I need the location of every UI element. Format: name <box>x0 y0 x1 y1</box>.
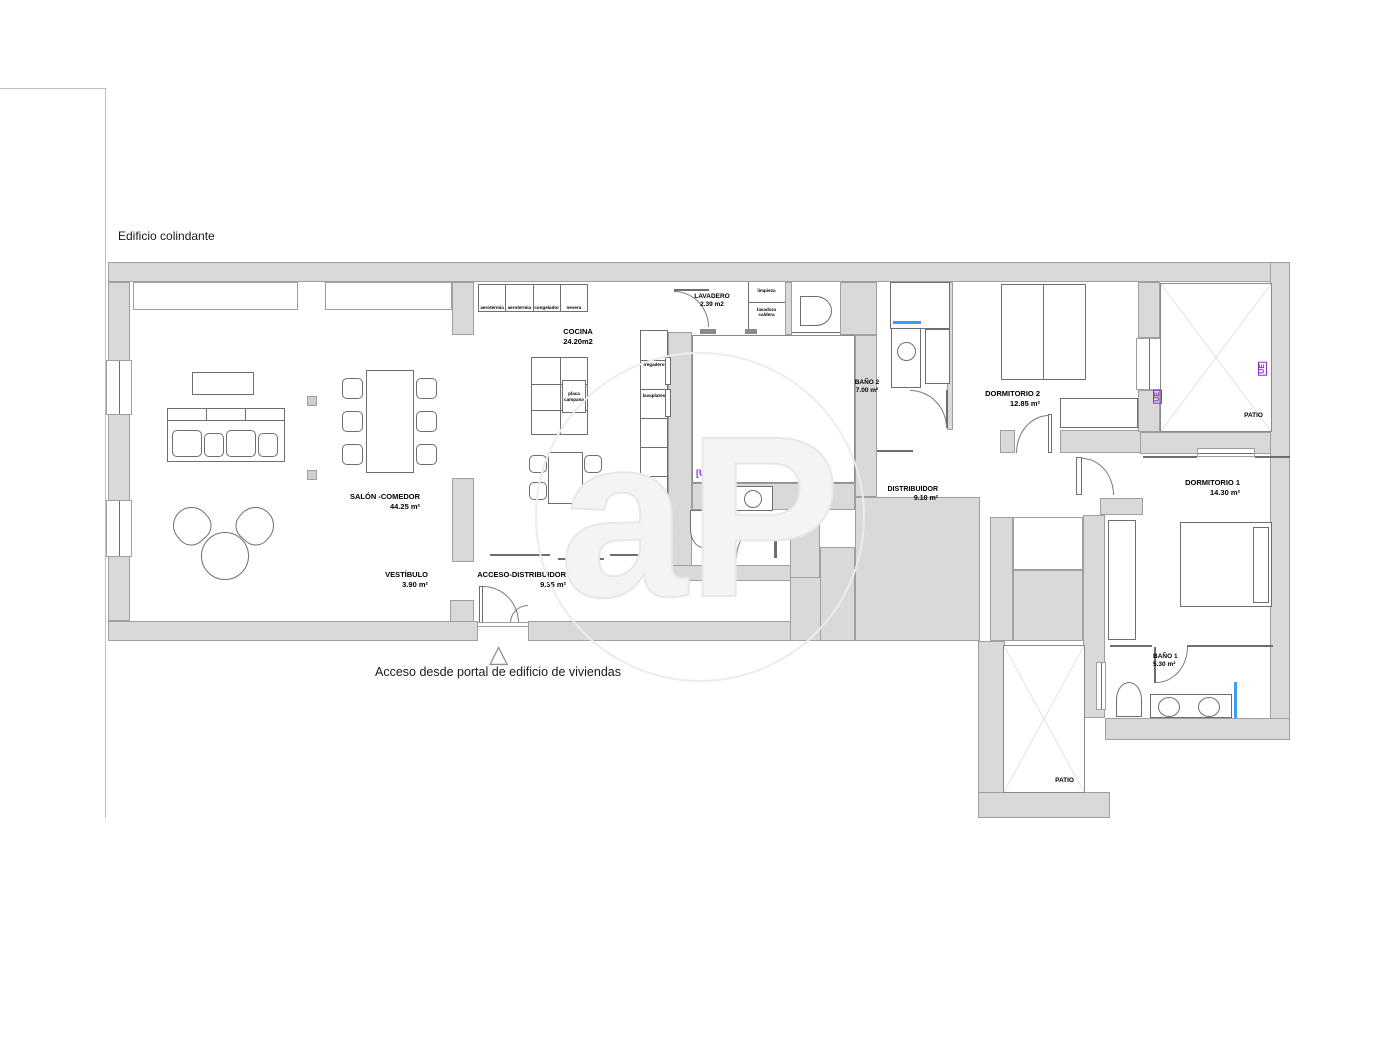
ue-tag-patio-left: UE <box>1153 390 1162 404</box>
wall-right <box>1270 262 1290 740</box>
sofa-cushion <box>258 433 278 457</box>
wall-salon-cocina-bottom <box>452 478 474 562</box>
boiler-drum <box>800 296 832 326</box>
wall-patio-center-right <box>855 335 877 497</box>
wall-corridor-left <box>990 517 1013 641</box>
bano1-top-wall-line-b <box>1187 645 1273 647</box>
patio-center: PATIO <box>692 335 855 483</box>
window-dorm1-top <box>1197 448 1255 457</box>
unit-fridge: nevera <box>561 285 587 311</box>
wall-aseo-bottom <box>668 565 800 581</box>
wall-left <box>108 282 130 621</box>
room-label-bano2: BAÑO 27.00 m² <box>842 379 892 396</box>
adjacent-building-label: Edificio colindante <box>118 229 215 243</box>
tv-sideboard <box>192 372 254 395</box>
unit-divider <box>641 389 667 390</box>
laundry-niche-bottom-line <box>792 332 840 333</box>
window-dorm2-patio <box>1136 338 1162 390</box>
sofa-divider <box>245 409 246 420</box>
kitchen-chair <box>529 482 547 500</box>
room-label-cocina: COCINA24.20m2 <box>548 327 608 347</box>
oven-stack-label: fornhornomicro <box>640 522 668 538</box>
sofa-cushion <box>204 433 224 457</box>
dorm1-top-wall-line-b <box>1255 456 1290 458</box>
aseo-door-swing <box>736 519 775 558</box>
sofa-back-line <box>168 420 284 421</box>
room-label-salon: SALÓN -COMEDOR44.25 m² <box>300 492 420 512</box>
patio-label: PATIO <box>1244 412 1263 419</box>
washbasin-aseo <box>744 490 762 508</box>
window-glass-line <box>1149 339 1150 389</box>
entry-sill <box>478 622 528 627</box>
ue-tag-center: [UE] <box>696 468 715 478</box>
wall-dorm1-entry-stub <box>1100 498 1143 515</box>
window-glass-line <box>119 501 120 556</box>
patio-top-right: PATIO <box>1160 283 1272 432</box>
wall-top <box>108 262 1290 282</box>
washbasin-bano2 <box>897 342 916 361</box>
wall-bano1-bottom <box>1105 718 1290 740</box>
boundary-line-vertical <box>105 88 106 818</box>
wall-small-block <box>820 547 855 641</box>
wall-dorm2-bottom-a <box>1000 430 1015 453</box>
wall-dorm2-bottom-b <box>1060 430 1150 453</box>
kitchen-chair <box>584 482 602 500</box>
window-glass-line <box>1101 663 1102 709</box>
room-label-distribuidor: DISTRIBUIDOR9.10 m² <box>868 485 938 503</box>
dorm1-top-wall-line-a <box>1143 456 1197 458</box>
unit-divider <box>641 447 667 448</box>
wall-salon-cocina-top <box>452 282 474 335</box>
patio-bottom: PATIO <box>1003 645 1085 793</box>
wall-dorm2-patio-upper <box>1138 282 1160 338</box>
laundry-divider-h <box>748 302 785 303</box>
salon-wall-niche-2 <box>325 282 452 310</box>
wall-lavadero-right <box>785 282 792 335</box>
laundry-washer-label: lavadoracaldera <box>748 307 785 318</box>
sofa-cushion <box>172 430 202 457</box>
pillar <box>307 396 317 406</box>
round-table <box>201 532 249 580</box>
unit-freezer: congelador <box>534 285 561 311</box>
floor-plan: Edificio colindante Acceso desde portal … <box>0 0 1400 1050</box>
room-label-dorm1: DORMITORIO 114.30 m² <box>1150 478 1240 498</box>
window-left-1 <box>106 360 132 415</box>
pillar <box>307 470 317 480</box>
bed-dorm1-headboard <box>1253 527 1269 603</box>
patio-cross-lines <box>1004 646 1084 792</box>
room-label-dorm2: DORMITORIO 212.85 m² <box>950 389 1040 409</box>
unit-aerotermia-1: aerotermia <box>479 285 506 311</box>
unit-divider <box>641 476 667 477</box>
wall-bottom-left <box>108 621 478 641</box>
dining-chair <box>342 444 363 465</box>
dorm1-door-swing <box>1082 458 1114 495</box>
shower-screen-blue <box>893 321 921 324</box>
desk-dorm2 <box>1060 398 1138 428</box>
ue-tag-patio-right: UE <box>1258 362 1267 376</box>
wall-kitchen-right <box>668 332 692 570</box>
bed-dorm2-divider <box>1043 285 1044 379</box>
island-hob: placacampana <box>562 380 586 413</box>
bano2-door-swing <box>910 390 947 428</box>
wall-below-niche <box>1013 570 1083 641</box>
wall-bano2-left <box>840 282 877 335</box>
salon-wall-niche-1 <box>133 282 298 310</box>
island-divider <box>560 358 561 434</box>
patio-label: PATIO <box>1055 777 1074 784</box>
dining-chair <box>342 378 363 399</box>
laundry-sill-block <box>745 329 757 334</box>
washbasin-bano1 <box>1158 697 1180 717</box>
boundary-line-horizontal <box>0 88 105 89</box>
dining-chair <box>416 378 437 399</box>
wardrobe-dorm1 <box>1108 520 1136 640</box>
bano1-top-wall-line-a <box>1110 645 1152 647</box>
entrance-marker-icon <box>489 639 508 669</box>
wall-below-distribuidor <box>855 497 980 641</box>
dining-chair <box>416 444 437 465</box>
corridor-niche <box>1013 517 1083 570</box>
window-left-2 <box>106 500 132 557</box>
dishwasher-unit-label: lavaplatos <box>640 393 668 398</box>
dorm2-door-swing <box>1016 415 1049 453</box>
dining-chair <box>342 411 363 432</box>
kitchen-table <box>548 452 583 504</box>
wall-patio-center-bottom <box>692 483 855 510</box>
window-glass-line <box>119 361 120 414</box>
dining-chair <box>416 411 437 432</box>
room-label-vestibulo: VESTÍBULO3.90 m² <box>348 570 428 590</box>
toilet-bano1 <box>1116 682 1142 717</box>
sliding-door-line <box>558 558 604 560</box>
window-patio-b-right <box>1096 662 1106 710</box>
room-label-aseo: ASEO2.35 m² <box>690 542 740 559</box>
sofa-cushion <box>226 430 256 457</box>
dining-table <box>366 370 414 473</box>
kitchen-wall-units: aerotermia aerotermia congelador nevera <box>478 284 588 312</box>
patio-label: PATIO <box>791 461 810 468</box>
window-glass-line <box>1198 453 1254 454</box>
room-label-lavadero: LAVADERO2.39 m2 <box>680 293 744 310</box>
sliding-door-line <box>490 554 550 556</box>
patio-cross-lines <box>1161 284 1271 431</box>
unit-aerotermia-2: aerotermia <box>506 285 533 311</box>
cabinet-bano2 <box>925 329 950 384</box>
sink-unit-label: fregadero <box>640 362 668 367</box>
unit-divider <box>641 418 667 419</box>
wall-entry-stub <box>450 600 474 622</box>
kitchen-chair <box>584 455 602 473</box>
room-label-bano1: BAÑO 15.30 m² <box>1153 653 1203 670</box>
bano2-bottom-wall-line <box>877 450 913 452</box>
laundry-sill-block <box>700 329 716 334</box>
laundry-cleaning-label: limpieza <box>748 288 785 293</box>
kitchen-chair <box>529 455 547 473</box>
unit-divider <box>641 505 667 506</box>
wall-aseo-right <box>790 510 820 580</box>
sofa-divider <box>206 409 207 420</box>
wall-patio-b-bottom <box>978 792 1110 818</box>
unit-divider <box>641 360 667 361</box>
room-label-acceso: ACCESO-DISTRIBUIDOR9.35 m² <box>446 570 566 590</box>
shower-screen-blue-bano1 <box>1234 682 1237 718</box>
washbasin-bano1 <box>1198 697 1220 717</box>
